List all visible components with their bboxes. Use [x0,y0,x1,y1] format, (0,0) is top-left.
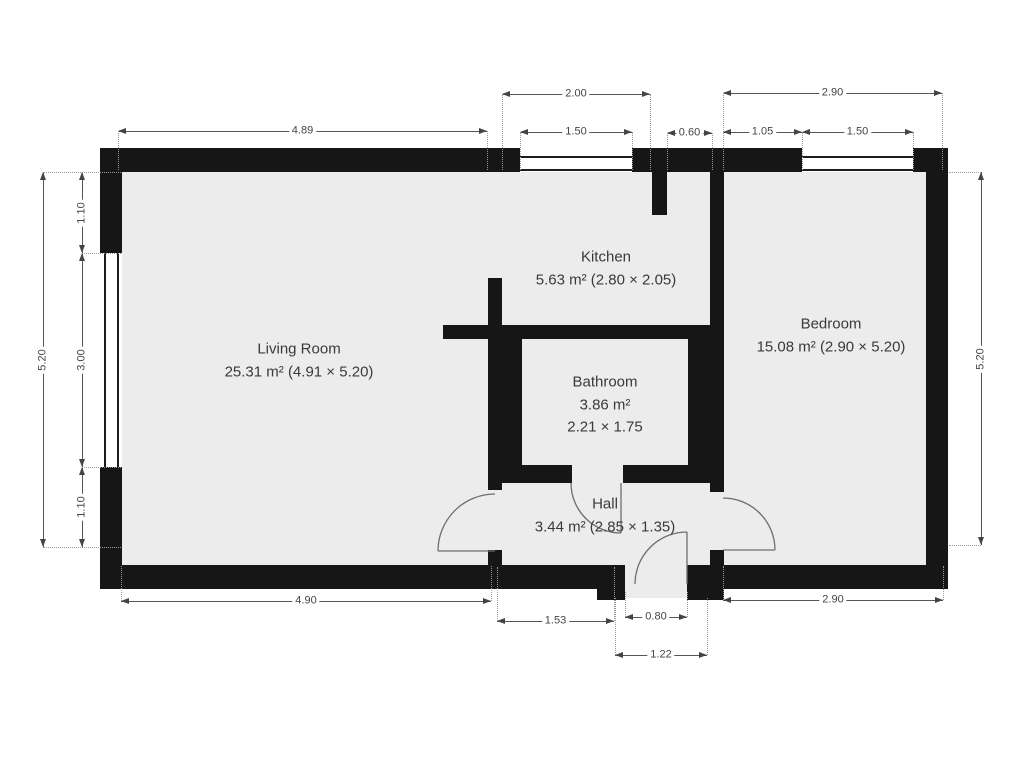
arrowhead [121,598,129,604]
extension-line [949,545,981,546]
living-room-hall-door-arc [438,494,495,551]
bedroom-door-arc [723,498,775,550]
room-name: Hall [535,494,676,517]
dimension-value: 1.22 [647,649,674,662]
dimension-value: 1.50 [844,126,871,139]
extension-line [491,566,492,601]
extension-line [943,566,944,600]
extension-line [942,93,943,170]
extension-line [712,133,713,170]
room-area: 5.63 m² (2.80 × 2.05) [536,269,677,292]
room-area: 3.44 m² (2.85 × 1.35) [535,516,676,539]
arrowhead [79,245,85,253]
extension-line [487,131,488,170]
arrowhead [699,652,707,658]
arrowhead [624,129,632,135]
extension-line [949,172,981,173]
arrowhead [118,128,126,134]
extension-line [802,132,803,170]
arrowhead [642,91,650,97]
room-size: 2.21 × 1.75 [567,416,642,439]
arrowhead [615,652,623,658]
extension-line [118,131,119,170]
arrowhead [483,598,491,604]
arrowhead [723,129,731,135]
extension-line [502,94,503,170]
dimension-value: 2.90 [819,594,846,607]
extension-line [82,467,121,468]
floor-plan: 2.004.891.500.602.901.051.505.201.103.00… [0,0,1024,768]
arrowhead [935,597,943,603]
arrowhead [679,614,687,620]
extension-line [687,592,688,617]
entrance-door-arc [635,532,687,584]
room-name: Bedroom [757,314,906,337]
arrowhead [79,539,85,547]
arrowhead [40,539,46,547]
extension-line [497,567,498,621]
arrowhead [802,129,810,135]
arrowhead [978,172,984,180]
dimension-value: 0.80 [642,611,669,624]
arrowhead [497,618,505,624]
arrowhead [723,90,731,96]
arrowhead [40,172,46,180]
arrowhead [79,467,85,475]
extension-line [707,598,708,655]
dimension-value: 3.00 [76,346,89,373]
arrowhead [625,614,633,620]
arrowhead [905,129,913,135]
extension-line [723,566,724,600]
room-name: Living Room [225,339,374,362]
arrowhead [502,91,510,97]
door-swing-layer [0,0,1024,768]
dimension-value: 2.90 [819,87,846,100]
arrowhead [606,618,614,624]
extension-line [82,172,121,173]
extension-line [667,133,668,170]
arrowhead [79,253,85,261]
dimension-value: 1.50 [562,126,589,139]
extension-line [625,592,626,617]
dimension-value: 5.20 [37,346,50,373]
kitchen-label: Kitchen 5.63 m² (2.80 × 2.05) [536,247,677,292]
extension-line [520,132,521,170]
arrowhead [794,129,802,135]
arrowhead [79,172,85,180]
extension-line [82,547,121,548]
room-area: 25.31 m² (4.91 × 5.20) [225,361,374,384]
arrowhead [704,130,712,136]
room-area: 15.08 m² (2.90 × 5.20) [757,336,906,359]
arrowhead [934,90,942,96]
arrowhead [79,459,85,467]
dimension-value: 1.53 [542,615,569,628]
bedroom-label: Bedroom 15.08 m² (2.90 × 5.20) [757,314,906,359]
extension-line [121,566,122,601]
arrowhead [479,128,487,134]
living-room-label: Living Room 25.31 m² (4.91 × 5.20) [225,339,374,384]
extension-line [913,132,914,170]
extension-line [632,132,633,170]
arrowhead [723,597,731,603]
room-name: Kitchen [536,247,677,270]
extension-line [615,598,616,655]
dimension-value: 1.05 [749,126,776,139]
room-name: Bathroom [567,371,642,394]
dimension-value: 2.00 [562,88,589,101]
dimension-value: 0.60 [676,127,703,140]
extension-line [723,132,724,170]
dimension-value: 1.10 [76,199,89,226]
hall-label: Hall 3.44 m² (2.85 × 1.35) [535,494,676,539]
arrowhead [520,129,528,135]
dimension-value: 1.10 [76,493,89,520]
arrowhead [978,537,984,545]
extension-line [82,253,121,254]
room-area: 3.86 m² [567,394,642,417]
dimension-value: 4.90 [292,595,319,608]
arrowhead [667,130,675,136]
dimension-value: 4.89 [289,125,316,138]
bathroom-label: Bathroom 3.86 m² 2.21 × 1.75 [567,371,642,439]
dimension-value: 5.20 [975,345,988,372]
extension-line [650,94,651,170]
